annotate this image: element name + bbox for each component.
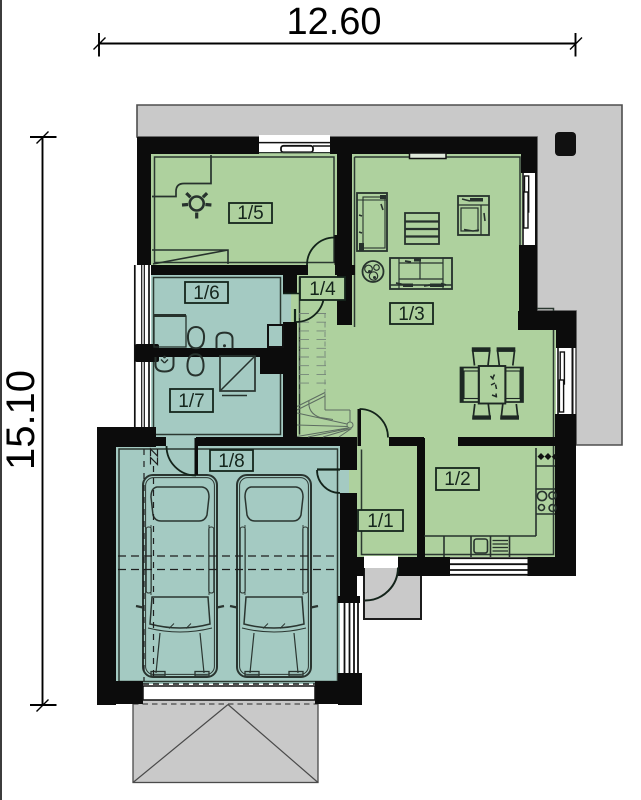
svg-text:12.60: 12.60 (286, 1, 381, 43)
svg-text:1/6: 1/6 (193, 283, 219, 304)
svg-text:1/5: 1/5 (237, 203, 263, 224)
svg-text:1/1: 1/1 (367, 511, 393, 532)
svg-text:1/3: 1/3 (398, 304, 424, 325)
svg-text:1/8: 1/8 (218, 451, 244, 472)
svg-text:15.10: 15.10 (0, 370, 43, 470)
svg-text:1/2: 1/2 (444, 469, 470, 490)
svg-text:1/4: 1/4 (309, 279, 336, 300)
svg-text:1/7: 1/7 (178, 391, 204, 412)
